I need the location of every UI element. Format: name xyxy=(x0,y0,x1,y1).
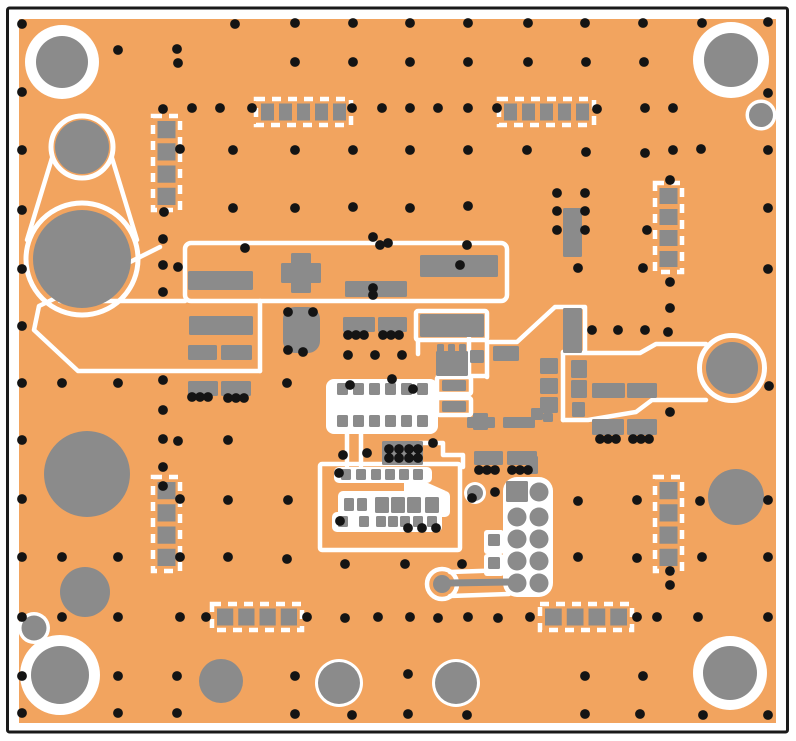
via xyxy=(158,287,168,297)
via xyxy=(463,201,473,211)
component-pad xyxy=(567,609,584,626)
copper-circle xyxy=(44,431,130,517)
mounting-hole xyxy=(703,646,757,700)
via xyxy=(763,145,773,155)
via xyxy=(57,612,67,622)
via xyxy=(405,18,415,28)
via xyxy=(408,384,418,394)
component-pad xyxy=(279,104,292,121)
copper-circle xyxy=(530,530,549,549)
smd-pad xyxy=(356,469,366,480)
via xyxy=(347,710,357,720)
via xyxy=(175,494,185,504)
via xyxy=(223,435,233,445)
via xyxy=(405,57,415,67)
pcb-layout-canvas xyxy=(0,0,796,741)
smd-pad xyxy=(436,351,468,376)
via xyxy=(17,264,27,274)
via xyxy=(668,103,678,113)
copper-circle xyxy=(55,120,109,174)
via xyxy=(523,57,533,67)
via xyxy=(113,671,123,681)
via xyxy=(644,434,654,444)
via xyxy=(282,554,292,564)
via xyxy=(239,393,249,403)
via xyxy=(173,262,183,272)
via xyxy=(203,392,213,402)
via xyxy=(763,495,773,505)
via xyxy=(17,87,27,97)
via xyxy=(228,145,238,155)
via xyxy=(228,203,238,213)
via xyxy=(490,487,500,497)
via xyxy=(17,19,27,29)
via xyxy=(403,709,413,719)
smd-pad xyxy=(425,497,439,513)
component-pad xyxy=(660,188,678,204)
via xyxy=(362,448,372,458)
via xyxy=(345,380,355,390)
via xyxy=(158,481,168,491)
via xyxy=(573,552,583,562)
via xyxy=(463,18,473,28)
via xyxy=(384,444,394,454)
copper-circle xyxy=(433,575,451,593)
via xyxy=(283,345,293,355)
via xyxy=(348,202,358,212)
smd-pad xyxy=(571,360,587,378)
smd-pad xyxy=(369,415,380,427)
via xyxy=(462,240,472,250)
copper-circle xyxy=(508,508,527,527)
via xyxy=(215,103,225,113)
smd-pad xyxy=(189,316,253,335)
via xyxy=(223,495,233,505)
via xyxy=(652,612,662,622)
via xyxy=(113,552,123,562)
via xyxy=(580,671,590,681)
via xyxy=(697,18,707,28)
via xyxy=(462,710,472,720)
smd-pad xyxy=(343,317,375,332)
smd-pad xyxy=(385,415,396,427)
via xyxy=(405,103,415,113)
smd-pad xyxy=(420,314,484,337)
copper-circle xyxy=(199,659,243,703)
via xyxy=(17,552,27,562)
via xyxy=(158,434,168,444)
via xyxy=(640,103,650,113)
mounting-hole xyxy=(31,646,89,704)
via xyxy=(384,453,394,463)
component-pad xyxy=(610,609,627,626)
via xyxy=(580,709,590,719)
via xyxy=(552,225,562,235)
via xyxy=(113,378,123,388)
via xyxy=(359,330,369,340)
via xyxy=(665,175,675,185)
via xyxy=(348,145,358,155)
component-pad xyxy=(540,104,553,121)
via xyxy=(338,450,348,460)
smd-pad xyxy=(369,383,380,395)
smd-pad xyxy=(543,413,553,422)
via xyxy=(17,145,27,155)
via xyxy=(665,580,675,590)
via xyxy=(693,612,703,622)
smd-pad xyxy=(337,415,348,427)
smd-pad xyxy=(474,451,503,465)
component-pad xyxy=(333,104,346,121)
via xyxy=(632,612,642,622)
via xyxy=(638,263,648,273)
via xyxy=(290,709,300,719)
via xyxy=(230,19,240,29)
via xyxy=(158,462,168,472)
component-pad xyxy=(158,143,176,160)
copper-circle xyxy=(706,342,758,394)
via xyxy=(302,612,312,622)
via xyxy=(573,496,583,506)
silkscreen-outline xyxy=(450,594,509,596)
via xyxy=(175,552,185,562)
component-pad xyxy=(545,609,562,626)
via xyxy=(665,277,675,287)
via xyxy=(638,18,648,28)
smd-pad xyxy=(442,380,466,391)
smd-pad xyxy=(378,317,407,332)
smd-pad xyxy=(572,402,585,417)
via xyxy=(348,18,358,28)
smd-pad xyxy=(385,383,396,395)
via xyxy=(764,381,774,391)
component-pad xyxy=(660,251,678,267)
smd-pad xyxy=(563,308,582,353)
via xyxy=(173,58,183,68)
via xyxy=(158,375,168,385)
smd-pad xyxy=(376,516,386,527)
smd-pad xyxy=(188,345,217,360)
component-pad xyxy=(158,166,176,183)
via xyxy=(335,516,345,526)
smd-pad xyxy=(459,344,466,352)
via xyxy=(663,327,673,337)
via xyxy=(433,103,443,113)
via xyxy=(348,57,358,67)
via xyxy=(383,238,393,248)
via xyxy=(580,206,590,216)
via xyxy=(580,18,590,28)
via xyxy=(463,57,473,67)
via xyxy=(334,468,344,478)
mounting-hole xyxy=(704,33,758,87)
component-pad xyxy=(238,609,254,626)
via xyxy=(387,374,397,384)
smd-pad xyxy=(385,469,395,480)
component-pad xyxy=(260,609,276,626)
via xyxy=(158,260,168,270)
copper-circle xyxy=(33,210,131,308)
via xyxy=(404,444,414,454)
via xyxy=(394,444,404,454)
via xyxy=(247,103,257,113)
via xyxy=(695,496,705,506)
via xyxy=(431,523,441,533)
via xyxy=(377,103,387,113)
via xyxy=(175,612,185,622)
via xyxy=(640,325,650,335)
smd-pad xyxy=(592,383,625,398)
smd-pad xyxy=(448,344,455,352)
via xyxy=(665,566,675,576)
smd-pad xyxy=(353,415,364,427)
via xyxy=(665,303,675,313)
via xyxy=(368,290,378,300)
via xyxy=(581,57,591,67)
via xyxy=(463,612,473,622)
via xyxy=(696,144,706,154)
via xyxy=(581,147,591,157)
via xyxy=(290,57,300,67)
via xyxy=(463,145,473,155)
via xyxy=(405,612,415,622)
component-pad xyxy=(261,104,274,121)
smd-pad xyxy=(503,417,535,428)
component-pad xyxy=(589,609,606,626)
via xyxy=(308,307,318,317)
via xyxy=(611,434,621,444)
via xyxy=(343,350,353,360)
via xyxy=(340,559,350,569)
via xyxy=(17,378,27,388)
via xyxy=(552,188,562,198)
via xyxy=(340,613,350,623)
component-pad xyxy=(158,527,176,544)
via xyxy=(638,671,648,681)
smd-pad xyxy=(540,358,558,374)
component-pad xyxy=(660,504,678,521)
via xyxy=(632,495,642,505)
via xyxy=(173,436,183,446)
smd-pad xyxy=(442,401,466,412)
smd-pad xyxy=(344,498,354,511)
via xyxy=(573,263,583,273)
via xyxy=(580,188,590,198)
copper-circle xyxy=(530,483,549,502)
pcb-layout-figure xyxy=(0,0,796,741)
smd-pad xyxy=(488,534,500,546)
via xyxy=(763,552,773,562)
smd-pad xyxy=(407,497,421,513)
smd-pad xyxy=(413,469,423,480)
smd-pad xyxy=(563,208,582,257)
mounting-hole xyxy=(36,36,88,88)
smd-pad xyxy=(291,253,311,293)
via xyxy=(290,671,300,681)
via xyxy=(763,612,773,622)
via xyxy=(428,438,438,448)
via xyxy=(373,612,383,622)
via xyxy=(522,145,532,155)
via xyxy=(433,613,443,623)
copper-circle xyxy=(508,574,527,593)
smd-pad xyxy=(417,383,428,395)
component-pad xyxy=(522,104,535,121)
smd-pad xyxy=(507,451,537,465)
via xyxy=(763,203,773,213)
via xyxy=(493,613,503,623)
via xyxy=(467,493,477,503)
plated-hole xyxy=(749,103,773,127)
component-pad xyxy=(297,104,310,121)
component-pad xyxy=(660,549,678,566)
smd-pad xyxy=(540,378,558,394)
via xyxy=(17,671,27,681)
smd-pad xyxy=(359,516,369,527)
via xyxy=(158,405,168,415)
copper-circle xyxy=(708,469,764,525)
via xyxy=(668,145,678,155)
via xyxy=(413,444,423,454)
smd-pad xyxy=(188,271,253,290)
via xyxy=(413,453,423,463)
smd-pad xyxy=(399,469,409,480)
smd-pad xyxy=(401,415,412,427)
component-pad xyxy=(558,104,571,121)
via xyxy=(763,710,773,720)
via xyxy=(632,553,642,563)
via xyxy=(290,18,300,28)
component-pad xyxy=(158,121,176,138)
copper-circle xyxy=(530,552,549,571)
via xyxy=(457,559,467,569)
via xyxy=(763,264,773,274)
via xyxy=(523,465,533,475)
via xyxy=(175,144,185,154)
via xyxy=(290,203,300,213)
via xyxy=(455,260,465,270)
via xyxy=(552,206,562,216)
via xyxy=(223,552,233,562)
via xyxy=(763,88,773,98)
component-pad xyxy=(504,104,517,121)
via xyxy=(403,669,413,679)
smd-pad xyxy=(488,557,500,569)
via xyxy=(368,232,378,242)
via xyxy=(17,612,27,622)
via xyxy=(580,225,590,235)
smd-pad xyxy=(371,469,381,480)
smd-pad xyxy=(627,383,657,398)
via xyxy=(397,350,407,360)
plated-hole xyxy=(435,662,477,704)
smd-pad xyxy=(388,516,398,527)
via xyxy=(172,44,182,54)
smd-pad xyxy=(627,419,657,435)
via xyxy=(17,708,27,718)
via xyxy=(463,103,473,113)
component-pad xyxy=(217,609,233,626)
via xyxy=(587,325,597,335)
copper-trace xyxy=(450,582,512,583)
smd-pad xyxy=(391,497,405,513)
via xyxy=(404,453,414,463)
smd-pad xyxy=(506,481,528,502)
via xyxy=(592,104,602,114)
component-pad xyxy=(660,527,678,544)
via xyxy=(113,708,123,718)
via xyxy=(613,325,623,335)
via xyxy=(394,330,404,340)
copper-circle xyxy=(508,530,527,549)
via xyxy=(698,710,708,720)
via xyxy=(635,709,645,719)
via xyxy=(405,145,415,155)
plated-hole xyxy=(318,662,360,704)
via xyxy=(201,612,211,622)
smd-pad xyxy=(470,350,484,363)
via xyxy=(405,203,415,213)
via xyxy=(290,145,300,155)
via xyxy=(642,225,652,235)
via xyxy=(187,103,197,113)
via xyxy=(17,494,27,504)
via xyxy=(490,465,500,475)
via xyxy=(172,708,182,718)
smd-pad xyxy=(493,346,519,361)
via xyxy=(17,435,27,445)
via xyxy=(283,495,293,505)
component-pad xyxy=(158,504,176,521)
component-pad xyxy=(660,209,678,225)
via xyxy=(17,321,27,331)
smd-pad xyxy=(417,415,428,427)
via xyxy=(158,104,168,114)
via xyxy=(394,453,404,463)
via xyxy=(492,103,502,113)
via xyxy=(158,234,168,244)
component-pad xyxy=(315,104,328,121)
smd-pad xyxy=(375,497,389,513)
via xyxy=(370,350,380,360)
component-pad xyxy=(158,188,176,205)
via xyxy=(57,378,67,388)
via xyxy=(525,612,535,622)
component-pad xyxy=(576,104,589,121)
via xyxy=(283,307,293,317)
via xyxy=(17,205,27,215)
smd-pad xyxy=(437,344,444,352)
via xyxy=(240,243,250,253)
via xyxy=(113,612,123,622)
via xyxy=(172,671,182,681)
smd-pad xyxy=(571,380,587,398)
via xyxy=(298,347,308,357)
via xyxy=(57,552,67,562)
via xyxy=(640,148,650,158)
smd-pad xyxy=(592,419,624,435)
via xyxy=(665,407,675,417)
smd-pad xyxy=(473,413,488,430)
copper-circle xyxy=(530,508,549,527)
via xyxy=(113,45,123,55)
component-pad xyxy=(660,482,678,499)
via xyxy=(400,559,410,569)
via xyxy=(417,523,427,533)
smd-pad xyxy=(221,345,252,360)
via xyxy=(697,552,707,562)
via xyxy=(763,17,773,27)
